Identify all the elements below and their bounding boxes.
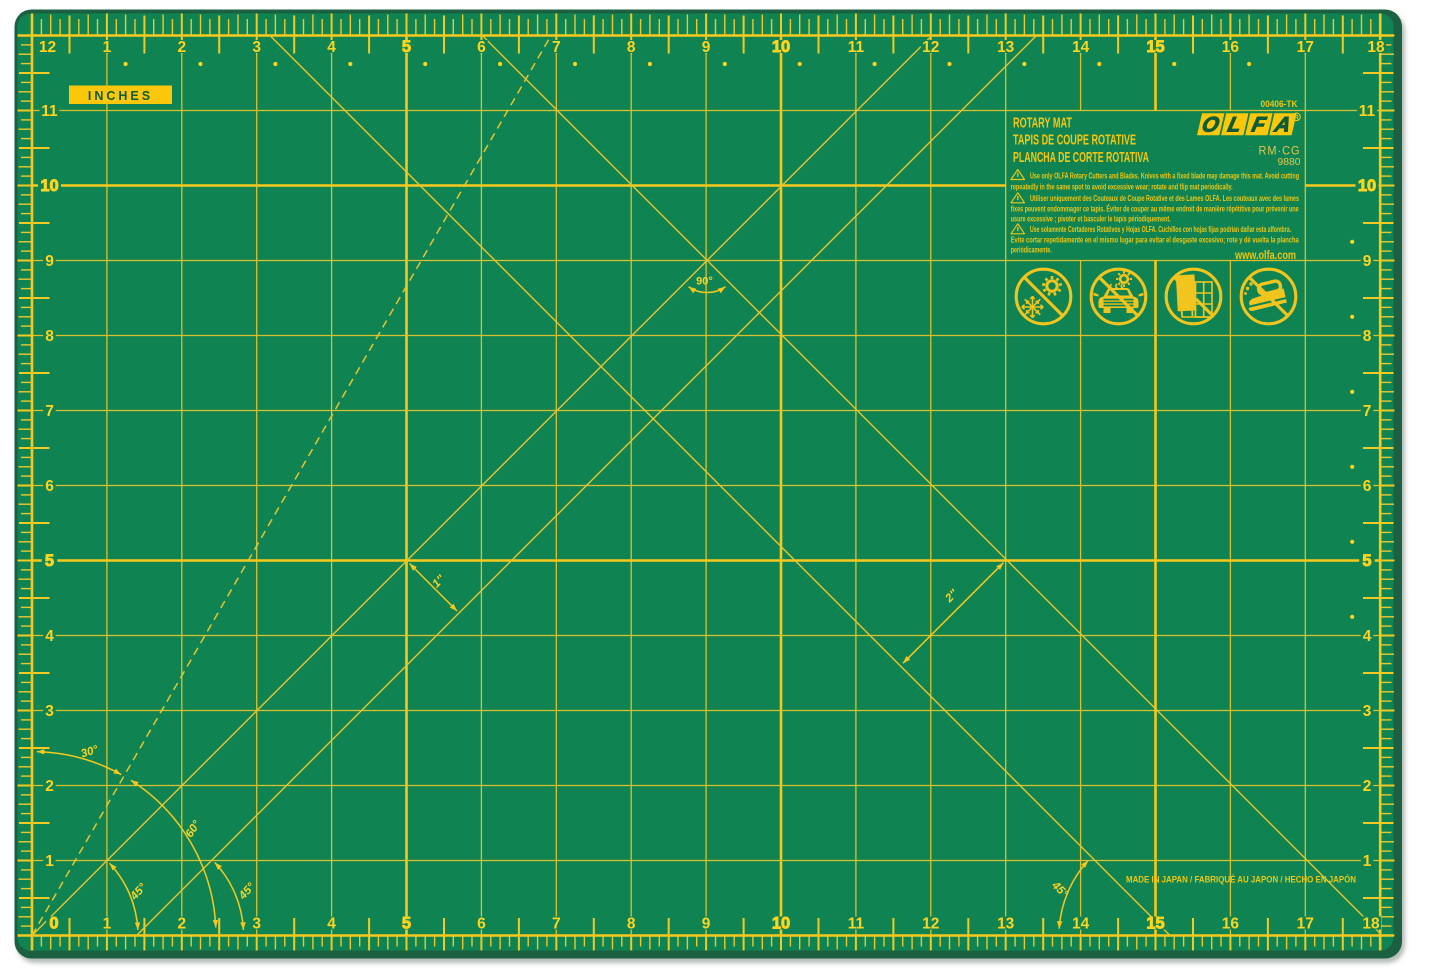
svg-text:Evite cortar repetidamente en: Evite cortar repetidamente en el mismo l… (1011, 235, 1299, 244)
svg-text:9: 9 (702, 39, 711, 56)
svg-text:2: 2 (1363, 778, 1372, 795)
svg-text:00406-TK: 00406-TK (1261, 99, 1298, 110)
svg-text:5: 5 (402, 915, 411, 933)
svg-text:17: 17 (1297, 39, 1314, 56)
svg-text:ROTARY MAT: ROTARY MAT (1013, 115, 1072, 131)
svg-text:0: 0 (49, 915, 58, 933)
svg-text:15: 15 (1146, 915, 1164, 933)
svg-text:2: 2 (177, 916, 186, 933)
svg-text:11: 11 (1359, 103, 1376, 120)
svg-text:90°: 90° (696, 276, 713, 288)
svg-text:11: 11 (41, 103, 58, 120)
svg-text:Utiliser uniquement des Coutea: Utiliser uniquement des Couteaux de Coup… (1030, 194, 1299, 203)
svg-text:16: 16 (1222, 916, 1240, 933)
svg-text:usure excessive ; pivoter et b: usure excessive ; pivoter et basculer le… (1011, 215, 1171, 224)
svg-text:9: 9 (702, 916, 711, 933)
svg-text:12: 12 (39, 39, 56, 56)
svg-text:1: 1 (1363, 853, 1372, 870)
svg-text:periódicamente.: periódicamente. (1011, 246, 1052, 255)
svg-text:INCHES: INCHES (88, 89, 153, 103)
svg-text:9: 9 (1363, 253, 1372, 270)
svg-text:2: 2 (45, 778, 54, 795)
svg-text:10: 10 (40, 177, 58, 195)
svg-text:6: 6 (477, 916, 486, 933)
svg-text:11: 11 (848, 39, 865, 56)
svg-text:1: 1 (45, 853, 54, 870)
svg-text:2: 2 (177, 39, 186, 56)
svg-text:Use only OLFA Rotary Cutters a: Use only OLFA Rotary Cutters and Blades.… (1030, 172, 1299, 181)
svg-text:TAPIS DE COUPE ROTATIVE: TAPIS DE COUPE ROTATIVE (1013, 132, 1136, 148)
svg-text:3: 3 (45, 703, 54, 720)
svg-text:8: 8 (627, 916, 636, 933)
svg-text:MADE IN JAPAN / FABRIQUÉ AU J: MADE IN JAPAN / FABRIQUÉ AU JAPON / HECH… (1126, 874, 1356, 886)
svg-text:17: 17 (1297, 916, 1314, 933)
svg-text:RM·CG: RM·CG (1259, 146, 1301, 158)
svg-text:Use solamente Cortadores Rotat: Use solamente Cortadores Rotativos y Hoj… (1030, 225, 1291, 234)
svg-text:8: 8 (1363, 328, 1372, 345)
svg-text:10: 10 (1358, 177, 1376, 195)
svg-text:4: 4 (327, 39, 336, 56)
svg-text:6: 6 (1363, 478, 1372, 495)
svg-text:1: 1 (103, 916, 112, 933)
svg-text:PLANCHA DE CORTE ROTATIVA: PLANCHA DE CORTE ROTATIVA (1013, 150, 1149, 166)
svg-text:6: 6 (477, 39, 486, 56)
svg-text:9: 9 (45, 253, 54, 270)
svg-text:5: 5 (1362, 552, 1371, 570)
svg-text:14: 14 (1072, 39, 1090, 56)
svg-text:14: 14 (1072, 916, 1090, 933)
svg-text:fixes peuvent endommager ce ta: fixes peuvent endommager ce tapis. Évite… (1011, 204, 1299, 213)
svg-text:8: 8 (627, 39, 636, 56)
svg-text:7: 7 (1363, 403, 1372, 420)
svg-text:12: 12 (922, 39, 939, 56)
svg-text:7: 7 (45, 403, 54, 420)
svg-text:10: 10 (772, 915, 790, 933)
svg-text:3: 3 (252, 39, 261, 56)
svg-text:6: 6 (45, 478, 54, 495)
svg-text:12: 12 (922, 916, 939, 933)
svg-text:4: 4 (45, 628, 54, 645)
svg-text:16: 16 (1222, 39, 1240, 56)
svg-text:repeatedly in the same spot to: repeatedly in the same spot to avoid exc… (1011, 183, 1233, 192)
svg-text:7: 7 (552, 916, 561, 933)
svg-text:9880: 9880 (1278, 157, 1301, 168)
svg-text:8: 8 (45, 328, 54, 345)
svg-text:5: 5 (45, 552, 54, 570)
svg-text:13: 13 (997, 916, 1015, 933)
svg-text:4: 4 (327, 916, 336, 933)
svg-text:11: 11 (848, 916, 865, 933)
svg-text:R: R (1294, 114, 1299, 121)
svg-text:4: 4 (1363, 628, 1372, 645)
svg-text:5: 5 (402, 38, 411, 56)
svg-text:www.olfa.com: www.olfa.com (1234, 250, 1296, 262)
svg-text:13: 13 (997, 39, 1015, 56)
svg-text:3: 3 (252, 916, 261, 933)
svg-text:10: 10 (772, 38, 790, 56)
svg-text:18: 18 (1367, 39, 1385, 56)
svg-text:15: 15 (1146, 38, 1164, 56)
svg-text:18: 18 (1362, 916, 1380, 933)
svg-text:7: 7 (552, 39, 561, 56)
svg-text:3: 3 (1363, 703, 1372, 720)
svg-text:1: 1 (103, 39, 112, 56)
